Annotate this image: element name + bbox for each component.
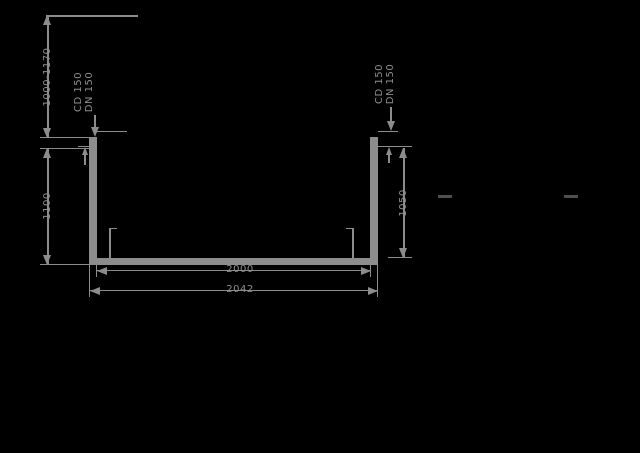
ground-line	[46, 15, 138, 17]
right-callout-line2: DN 150	[385, 61, 396, 107]
right-wall	[370, 137, 378, 265]
arrowhead-left-icon	[97, 267, 107, 275]
inner-profile-left	[109, 228, 111, 258]
arrowhead-right-icon	[368, 287, 378, 295]
dim-inner-width-label: 2000	[210, 264, 270, 276]
right-callout-line1: CD 150	[374, 61, 385, 107]
faint-level-mark-right	[564, 195, 578, 198]
right-leader-line	[390, 107, 392, 121]
right-edge-arrow-shaft	[388, 155, 390, 163]
wall-top-inner-edge-line	[97, 131, 127, 132]
right-leader-foot-tick	[378, 131, 398, 132]
right-leader-arrowhead-icon	[387, 121, 395, 131]
technical-drawing: 1000-1170 1100 CD 150 DN 150 CD 150 DN 1…	[0, 0, 640, 453]
left-edge-arrow-shaft	[84, 155, 86, 165]
inner-profile-right	[352, 228, 354, 258]
arrowhead-left-icon	[90, 287, 100, 295]
extension-line-slab-bottom	[40, 264, 90, 265]
left-callout-line1: CD 150	[73, 69, 84, 115]
dim-inner-depth-label: 1050	[398, 173, 410, 233]
extension-line-right-top	[378, 146, 412, 147]
left-callout: CD 150 DN 150	[73, 69, 95, 115]
arrowhead-up-icon	[43, 148, 51, 158]
left-leader-arrowhead-icon	[91, 127, 99, 137]
left-callout-line2: DN 150	[84, 69, 95, 115]
right-callout: CD 150 DN 150	[374, 61, 396, 107]
faint-level-mark-left	[438, 195, 452, 198]
inner-profile-left-tick	[109, 228, 117, 229]
arrowhead-right-icon	[361, 267, 371, 275]
inner-profile-right-tick	[346, 228, 354, 229]
dim-depth-range-label: 1000-1170	[42, 37, 54, 117]
left-wall	[89, 137, 97, 265]
arrowhead-down-icon	[399, 248, 407, 258]
left-edge-arrowhead-icon	[82, 147, 88, 155]
right-edge-arrowhead-icon	[386, 147, 392, 155]
dim-outer-width-label: 2042	[210, 284, 270, 296]
arrowhead-up-icon	[43, 15, 51, 25]
extension-line-wall-top	[40, 137, 90, 138]
arrowhead-up-icon	[399, 148, 407, 158]
dim-outer-height-label: 1100	[42, 176, 54, 236]
